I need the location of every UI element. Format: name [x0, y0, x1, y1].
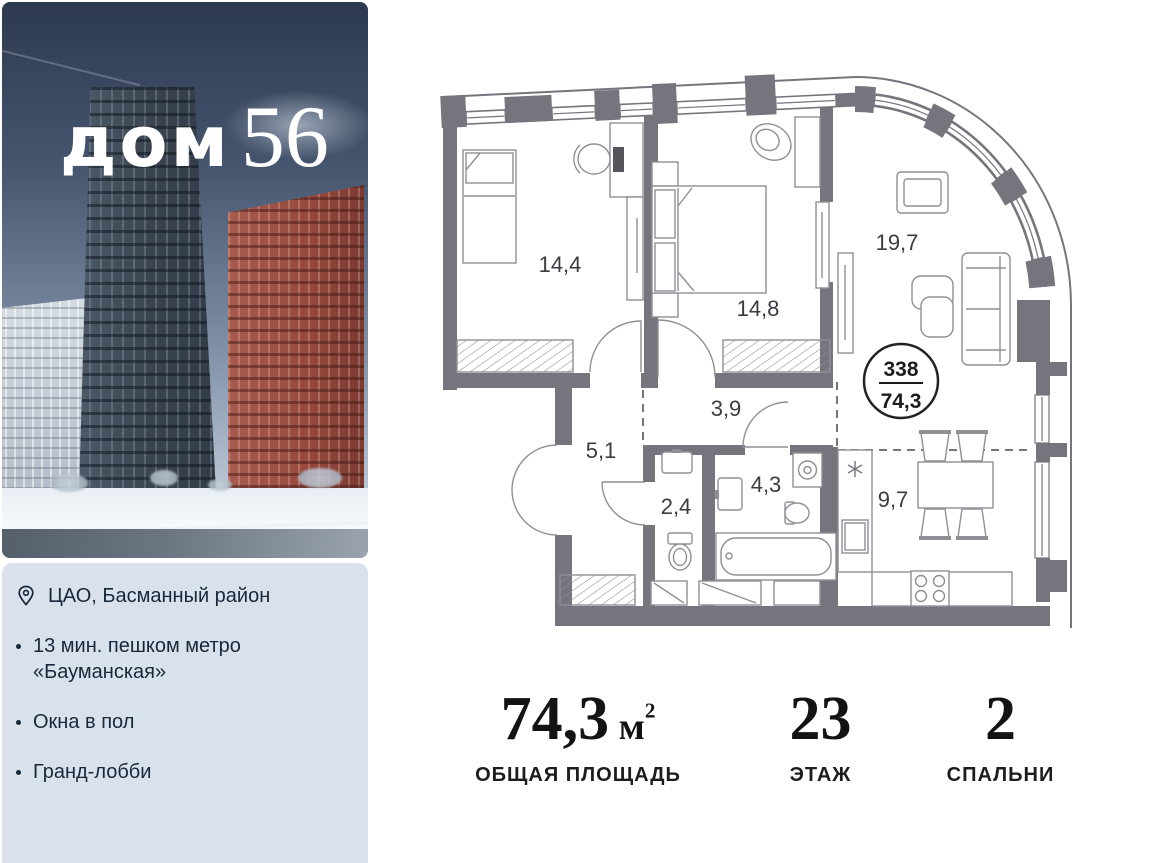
- stat-floor: 23 ЭТАЖ: [738, 688, 903, 787]
- hall-furniture: [560, 575, 635, 605]
- bullet-dot: [16, 770, 21, 775]
- door-arc-wc: [602, 482, 645, 525]
- brand-logo-number: 56: [241, 98, 329, 177]
- feature-label: Окна в пол: [33, 709, 134, 735]
- location-row: ЦАО, Басманный район: [16, 583, 350, 609]
- unit-number-badge: 338 74,3: [864, 344, 938, 418]
- stat-bedrooms-value: 2: [918, 688, 1083, 750]
- floor-plan: 14,4 14,8 19,7 3,9 5,1 2,4 4,3 9,7 338 7…: [430, 58, 1110, 640]
- unit-number: 338: [883, 358, 918, 381]
- kitchen-furniture: [838, 432, 1012, 606]
- room-label-kitchen-dining: 9,7: [878, 487, 909, 512]
- bush: [150, 470, 178, 486]
- room-label-bedroom-2: 14,8: [737, 296, 780, 321]
- building-photo: дом 56: [2, 2, 368, 558]
- stat-total-area-label: ОБЩАЯ ПЛОЩАДЬ: [443, 764, 713, 787]
- bedroom-1-furniture: [457, 123, 643, 372]
- room-label-bathroom: 4,3: [751, 472, 782, 497]
- brand-logo: дом 56: [60, 98, 329, 177]
- feature-row: Гранд-лобби: [16, 759, 350, 785]
- bush: [208, 479, 232, 491]
- stat-total-area: 74,3 м2 ОБЩАЯ ПЛОЩАДЬ: [443, 688, 713, 787]
- bullet-dot: [16, 720, 21, 725]
- info-panel: ЦАО, Басманный район 13 мин. пешком метр…: [2, 563, 368, 863]
- door-arc-bathroom: [743, 402, 788, 447]
- contrail-line: [2, 48, 140, 86]
- stat-bedrooms-label: СПАЛЬНИ: [918, 764, 1083, 787]
- feature-label: Гранд-лобби: [33, 759, 151, 785]
- bathroom-furniture: [651, 453, 836, 605]
- feature-label: 13 мин. пешком метро «Бауманская»: [33, 633, 350, 685]
- stat-bedrooms: 2 СПАЛЬНИ: [918, 688, 1083, 787]
- bush: [298, 468, 342, 488]
- room-label-hall: 5,1: [586, 438, 617, 463]
- door-arc-bedroom-2: [658, 320, 715, 377]
- tower-red: [228, 185, 364, 529]
- feature-row: 13 мин. пешком метро «Бауманская»: [16, 633, 350, 685]
- room-label-wc: 2,4: [661, 494, 692, 519]
- feature-row: Окна в пол: [16, 709, 350, 735]
- door-arc-bedroom-1: [590, 321, 641, 372]
- location-label: ЦАО, Басманный район: [48, 583, 270, 609]
- door-arc-entrance: [512, 445, 557, 535]
- brand-logo-word: дом: [60, 107, 231, 177]
- bush: [50, 474, 88, 492]
- room-label-living-room: 19,7: [876, 230, 919, 255]
- bedroom-2-furniture: [652, 116, 830, 372]
- room-label-bedroom-1: 14,4: [539, 252, 582, 277]
- listing-card: дом 56 ЦАО, Басманный район 13 мин. пешк…: [0, 0, 1150, 863]
- location-pin-icon: [16, 585, 36, 607]
- unit-area: 74,3: [881, 390, 922, 413]
- stat-floor-label: ЭТАЖ: [738, 764, 903, 787]
- stat-total-area-value: 74,3 м2: [443, 688, 713, 750]
- bullet-dot: [16, 644, 21, 649]
- living-room-furniture: [838, 172, 1010, 365]
- stat-floor-value: 23: [738, 688, 903, 750]
- road: [2, 529, 368, 558]
- room-label-corridor: 3,9: [711, 396, 742, 421]
